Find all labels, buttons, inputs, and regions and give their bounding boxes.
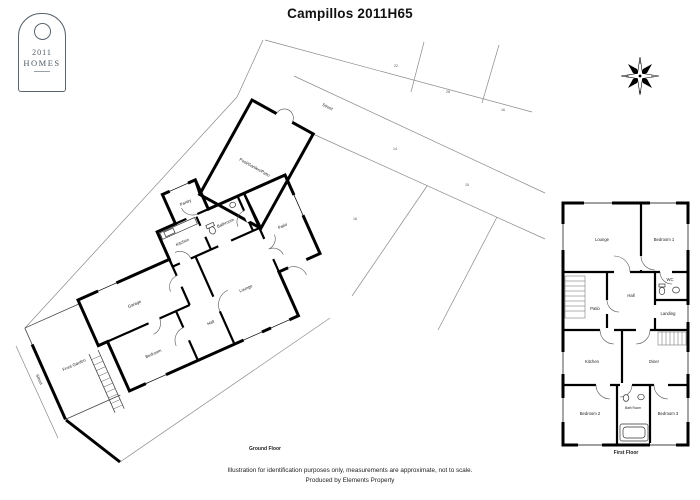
disclaimer-line: Illustration for identification purposes… [0,467,700,474]
ff-wc-label: WC [667,277,674,282]
rear-boundary-wall [66,420,120,462]
street-front-wall [32,345,65,420]
parcel-number: 28 [446,90,450,94]
compass-rose-icon: S E N W [621,57,659,95]
first-floor-room-labels: Lounge Bedroom 1 Patio Hall WC Landing K… [580,237,679,416]
compass-right-letter: E [651,75,654,79]
page-title: Campillos 2011H65 [0,6,700,21]
parcel-number: 18 [353,217,357,221]
bathtub-inner [623,427,645,438]
bath-toilet-icon [623,395,629,402]
ff-patio-label: Patio [590,306,600,311]
floorplan-canvas: 22 28 16 14 15 18 Street Street Pool/Gar… [0,0,700,500]
hall-label: Hall [206,319,215,327]
ground-floor-room-labels: Garage Bedroom Hall Lounge Kitchen Bathr… [20,166,315,393]
street-label-top: Street [322,102,335,112]
staircase-left [565,276,585,318]
ff-lounge-label: Lounge [595,237,610,242]
parcel-numbers: 22 28 16 14 15 18 [353,64,505,221]
ground-floor-house: Garage Bedroom Hall Lounge Kitchen Bathr… [0,146,345,432]
compass-left-letter: W [626,75,630,79]
bath-basin-icon [638,394,644,400]
patio-label: Patio [277,221,288,230]
parcel-number: 22 [394,64,398,68]
garage-label: Garage [127,298,142,309]
wc-cistern [659,284,665,287]
bathroom-label: Bathroom [216,217,235,229]
street-label-left: Street [35,373,44,386]
wc-basin-icon [673,287,680,293]
ff-kitchen-label: Kitchen [585,359,600,364]
pantry-label: Pantry [179,197,193,207]
logo-tagline-rule [34,71,50,72]
kitchen-label: Kitchen [175,237,190,248]
compass-bottom-letter: N [639,90,642,94]
bedroom-label: Bedroom [144,348,162,360]
agency-logo: 2011 HOMES [18,13,66,92]
logo-circle-icon [34,23,51,40]
produced-by-line: Produced by Elements Property [0,477,700,484]
logo-name: HOMES [23,58,60,68]
ff-bedroom2-label: Bedroom 2 [580,411,601,416]
ff-diner-label: Diner [649,359,660,364]
wc-toilet-icon [659,287,665,294]
lounge-label: Lounge [238,283,253,294]
first-floor-caption: First Floor [614,450,639,456]
floorplan-page: Campillos 2011H65 2011 HOMES 22 28 16 14 [0,0,700,500]
parcel-number: 15 [465,183,469,187]
basin-icon [229,201,237,208]
ground-floor-caption: Ground Floor [249,446,281,452]
pool-label: Pool/Garden/Patio [239,157,272,178]
ff-bedroom1-label: Bedroom 1 [654,237,675,242]
ff-bathroom-label: Bath Room [625,406,641,410]
first-floor-plan: Lounge Bedroom 1 Patio Hall WC Landing K… [563,203,688,456]
parcel-number: 14 [393,147,397,151]
compass-top-letter: S [639,61,642,65]
parcel-number: 16 [501,108,505,112]
front-garden-label: Front Garden [62,357,87,372]
logo-year: 2011 [32,48,52,57]
staircase-top-right [658,332,686,345]
disclaimer-footer: Illustration for identification purposes… [0,467,700,484]
ff-bedroom3-label: Bedroom 3 [658,411,679,416]
ff-landing-label: Landing [661,311,677,316]
driveway-path [89,350,124,413]
ff-hall-label: Hall [627,293,634,298]
